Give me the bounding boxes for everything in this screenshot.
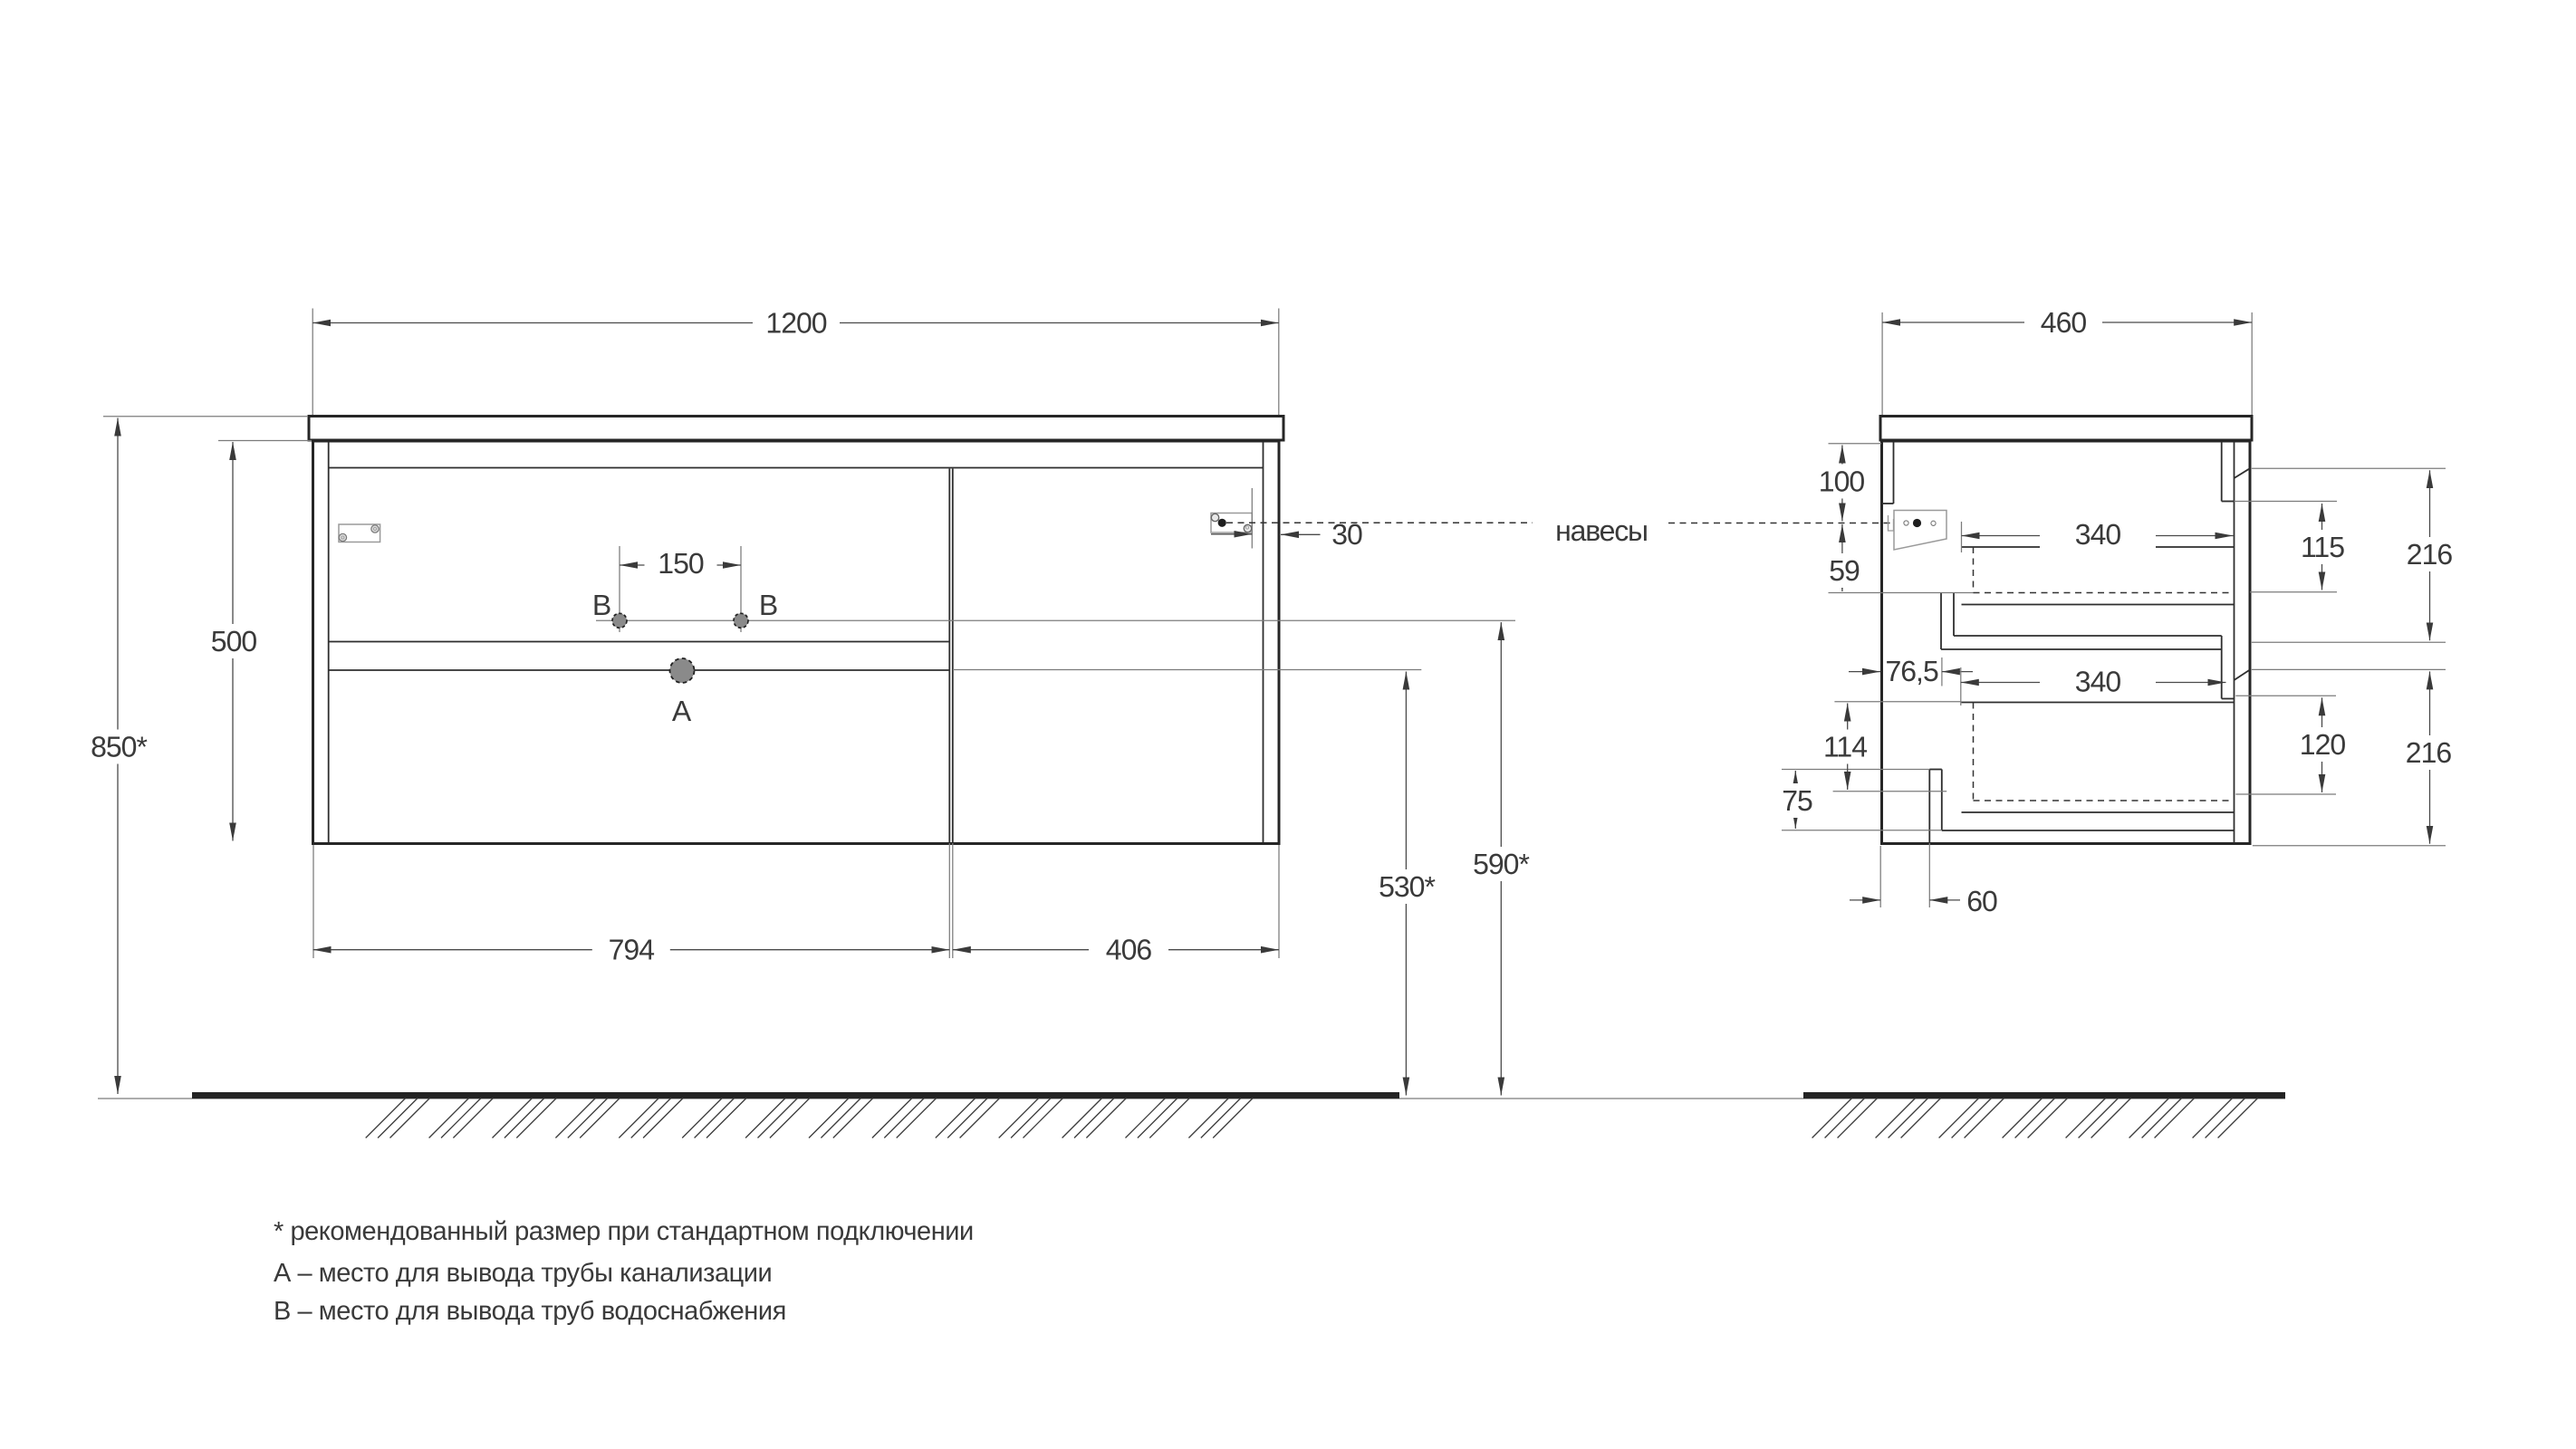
svg-text:150: 150 [658,547,704,580]
svg-text:30: 30 [1331,518,1362,551]
svg-text:76,5: 76,5 [1885,655,1937,687]
svg-text:794: 794 [609,934,655,966]
svg-text:1200: 1200 [765,307,826,340]
svg-text:216: 216 [2406,736,2452,769]
svg-text:460: 460 [2041,306,2087,339]
svg-text:* рекомендованный размер при с: * рекомендованный размер при стандартном… [274,1217,974,1246]
svg-text:B: B [759,589,777,621]
svg-text:340: 340 [2075,518,2121,551]
svg-text:114: 114 [1823,731,1867,763]
svg-text:406: 406 [1106,934,1152,966]
svg-text:59: 59 [1829,554,1860,587]
svg-text:340: 340 [2075,666,2121,698]
svg-text:500: 500 [211,625,257,657]
svg-text:850*: 850* [91,731,147,763]
svg-text:60: 60 [1966,885,1997,917]
svg-text:В – место для вывода труб водо: В – место для вывода труб водоснабжения [274,1297,786,1326]
svg-text:А – место для вывода трубы кан: А – место для вывода трубы канализации [274,1259,772,1288]
svg-text:120: 120 [2300,728,2346,761]
svg-text:216: 216 [2407,538,2453,571]
svg-text:навесы: навесы [1555,514,1648,547]
svg-text:B: B [592,589,610,621]
svg-text:75: 75 [1782,784,1812,817]
svg-text:590*: 590* [1473,848,1529,880]
svg-text:530*: 530* [1379,870,1435,903]
svg-text:100: 100 [1819,465,1865,498]
svg-text:115: 115 [2301,531,2344,563]
svg-text:A: A [672,695,692,727]
